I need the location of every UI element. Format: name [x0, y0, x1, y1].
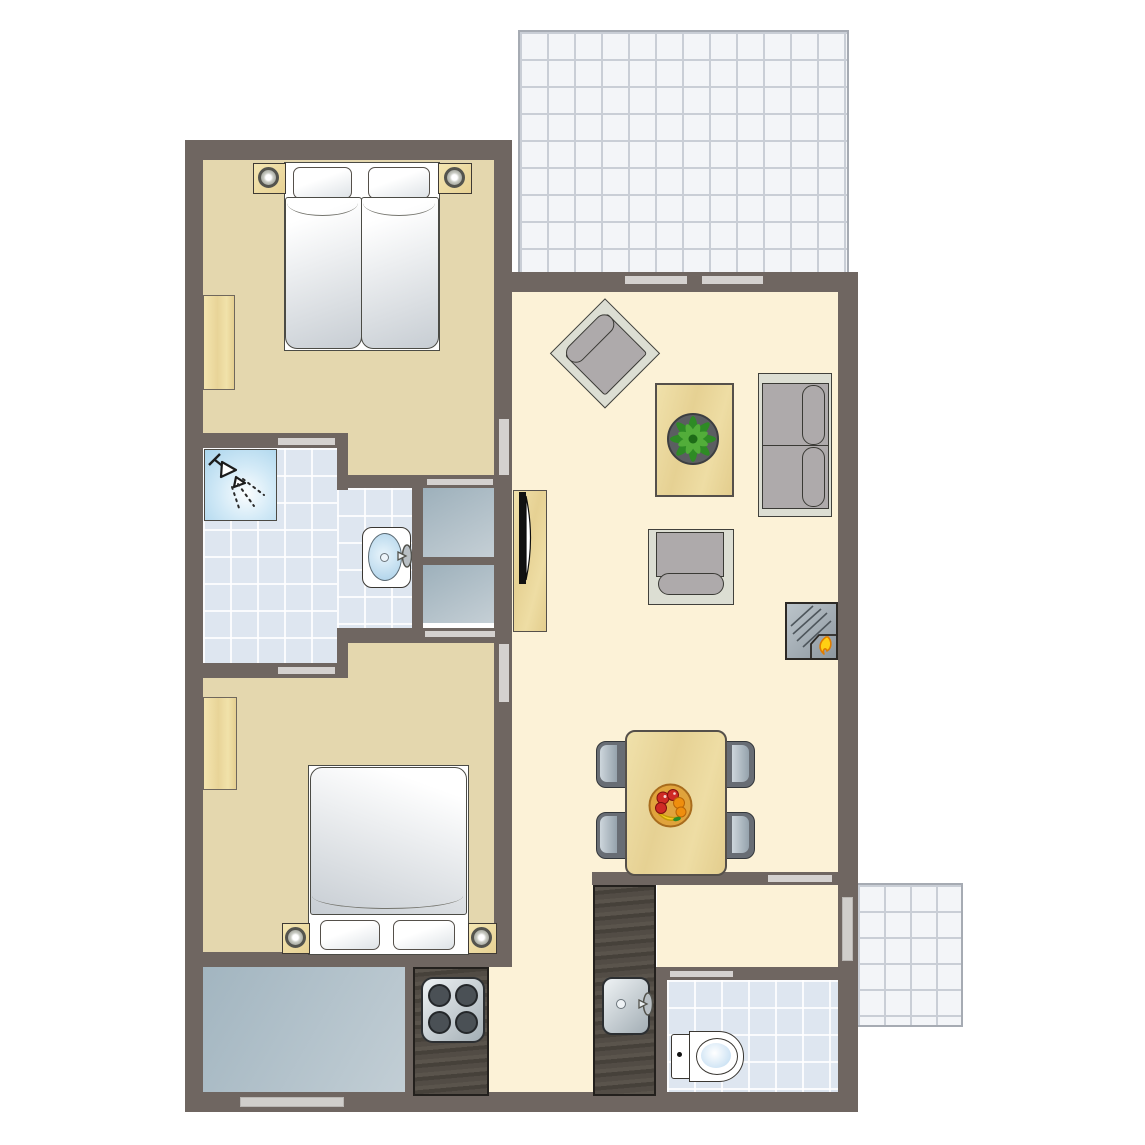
wardrobe — [203, 295, 235, 390]
dining-chair — [596, 812, 627, 859]
pillow — [368, 167, 430, 199]
fruit-bowl-icon — [648, 783, 693, 828]
potted-plant-icon — [666, 412, 720, 466]
mattress — [310, 767, 467, 915]
armchair-backrest — [658, 573, 724, 595]
pillow — [320, 920, 380, 950]
mattress-left — [285, 197, 362, 349]
bedroom-1-floor-nook — [348, 433, 494, 475]
burner-icon — [428, 1011, 451, 1034]
door-toilet — [670, 971, 733, 977]
lamp-icon — [444, 167, 465, 188]
wall-top — [185, 140, 512, 160]
pillow — [293, 167, 352, 199]
window-bottom — [240, 1097, 344, 1107]
bedroom-2-floor-nook — [348, 643, 494, 678]
terrace-bottom-floor — [856, 883, 963, 1027]
wall-spine — [494, 140, 512, 967]
kitchen-floor — [485, 967, 593, 1092]
burner-icon — [455, 984, 478, 1007]
faucet-icon — [396, 542, 412, 570]
closet-2-opening — [425, 631, 495, 637]
window-right — [842, 897, 853, 961]
drain-icon — [380, 553, 389, 562]
dining-chair-seat — [732, 816, 749, 853]
dining-chair-seat — [732, 745, 749, 782]
dining-chair-seat — [600, 745, 617, 782]
dining-chair — [724, 741, 755, 788]
shower — [204, 449, 277, 521]
fireplace-icon — [785, 602, 838, 660]
mattress-right — [361, 197, 439, 349]
shower-head-icon — [205, 450, 276, 520]
wall-storage-right — [405, 967, 413, 1092]
closet-1 — [423, 488, 498, 557]
armchair-cushion — [656, 532, 724, 577]
door-bathroom-bedroom-1 — [278, 438, 335, 445]
pillow — [393, 920, 455, 950]
tv-icon — [519, 492, 537, 584]
lamp-icon — [471, 927, 492, 948]
wall-jog-a — [337, 433, 348, 490]
toilet-button-icon — [677, 1052, 682, 1057]
closet-1-opening — [427, 479, 493, 485]
faucet-icon — [637, 990, 653, 1018]
floor-plan — [0, 0, 1145, 1145]
door-bathroom-bedroom-2 — [278, 667, 335, 674]
dining-chair — [596, 741, 627, 788]
drain-icon — [616, 999, 626, 1009]
burner-icon — [428, 984, 451, 1007]
sliding-terrace-door-panel-2 — [702, 276, 763, 284]
terrace-top-floor — [518, 30, 849, 278]
lamp-icon — [285, 927, 306, 948]
dining-chair — [724, 812, 755, 859]
sofa-backrest — [802, 447, 825, 507]
door-hallway — [768, 875, 832, 882]
door-bedroom-2 — [499, 644, 509, 702]
closet-2 — [423, 565, 498, 623]
door-bedroom-1 — [499, 419, 509, 475]
storage-room-floor — [203, 967, 405, 1092]
burner-icon — [455, 1011, 478, 1034]
sliding-terrace-door-panel-1 — [625, 276, 687, 284]
wall-right — [838, 272, 858, 1112]
wall-closet-divider — [423, 557, 498, 565]
hallway-floor — [657, 885, 838, 980]
lamp-icon — [258, 167, 279, 188]
wall-bathroom-right — [412, 488, 423, 628]
sofa-backrest — [802, 385, 825, 445]
toilet-water — [701, 1043, 731, 1068]
wardrobe — [203, 697, 237, 790]
dining-chair-seat — [600, 816, 617, 853]
wall-left — [185, 140, 203, 1112]
